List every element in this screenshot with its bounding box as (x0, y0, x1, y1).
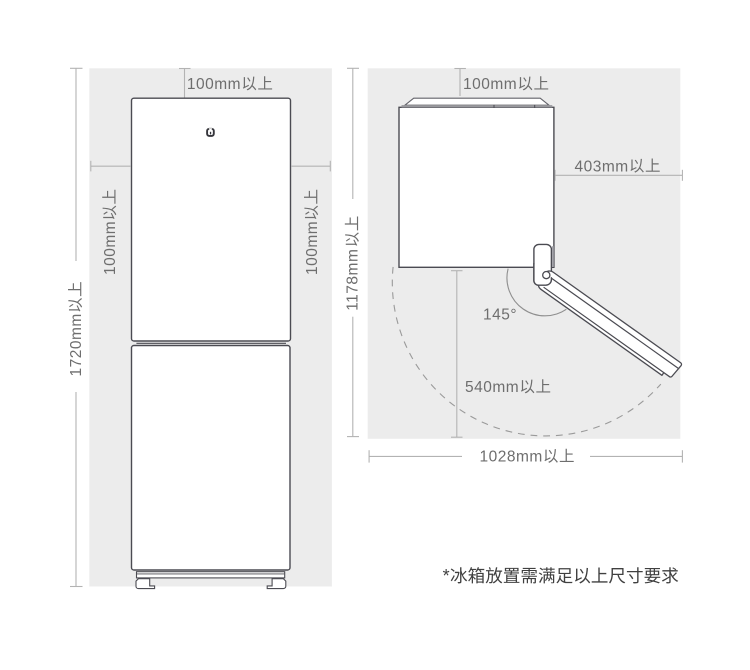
svg-text:1178mm: 1178mm (345, 249, 362, 311)
svg-text:1720mm: 1720mm (68, 313, 85, 376)
svg-text:1028mm: 1028mm (480, 449, 543, 466)
svg-text:100mm: 100mm (187, 76, 241, 93)
svg-text:403mm: 403mm (575, 158, 629, 175)
svg-text:*: * (443, 566, 450, 586)
svg-text:100mm: 100mm (102, 221, 119, 275)
svg-text:100mm: 100mm (463, 76, 517, 93)
svg-text:540mm: 540mm (465, 379, 519, 396)
svg-text:100mm: 100mm (304, 221, 321, 275)
svg-text:145°: 145° (483, 307, 517, 324)
